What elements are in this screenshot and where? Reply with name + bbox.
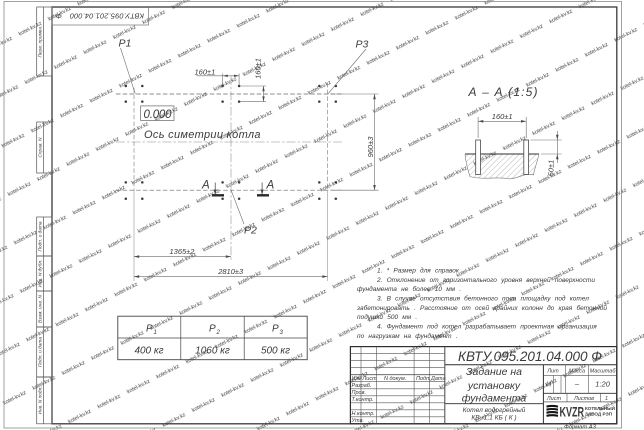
- svg-text:А – А (1:5): А – А (1:5): [468, 85, 538, 99]
- svg-text:Справ. N: Справ. N: [38, 137, 44, 158]
- svg-text:Котел водогрейный: Котел водогрейный: [463, 406, 526, 414]
- svg-text:Т.контр.: Т.контр.: [352, 397, 374, 403]
- svg-text:960±3: 960±3: [366, 136, 375, 158]
- svg-text:Утв.: Утв.: [351, 418, 365, 424]
- svg-text:2810±3: 2810±3: [217, 267, 244, 276]
- svg-text:Перв. примен.: Перв. примен.: [38, 26, 44, 58]
- svg-text:160±1: 160±1: [492, 112, 513, 121]
- svg-text:Инв. N дубл.: Инв. N дубл.: [38, 260, 44, 288]
- svg-text:Формат А3: Формат А3: [564, 424, 596, 430]
- svg-text:установку: установку: [467, 380, 521, 392]
- svg-text:КОТЕЛЬНЫЙ: КОТЕЛЬНЫЙ: [585, 404, 615, 411]
- svg-text:Подп. и дата: Подп. и дата: [38, 221, 44, 251]
- svg-text:4. Фундамент под котел раз: 4. Фундамент под котел разрабатывает про…: [377, 323, 597, 331]
- svg-text:1:20: 1:20: [595, 380, 610, 389]
- svg-text:подушки 500 мм .: подушки 500 мм .: [357, 313, 417, 321]
- svg-text:400 кг: 400 кг: [134, 345, 163, 356]
- svg-text:–: –: [574, 379, 580, 388]
- svg-text:50±1: 50±1: [546, 160, 555, 177]
- svg-text:Разраб.: Разраб.: [352, 383, 372, 389]
- svg-text:N докум.: N докум.: [384, 376, 406, 382]
- svg-text:1. * Размер для справок .: 1. * Размер для справок .: [377, 266, 465, 274]
- svg-text:P1: P1: [119, 37, 132, 49]
- svg-text:Р: Р: [209, 324, 216, 335]
- svg-text:Изм.: Изм.: [352, 376, 364, 382]
- svg-text:2: 2: [216, 330, 221, 336]
- svg-text:3. В случае отсутствия бет: 3. В случае отсутствия бетонного пола пл…: [377, 295, 589, 303]
- svg-text:Задание на: Задание на: [466, 366, 522, 378]
- svg-text:Лист: Лист: [362, 376, 378, 382]
- svg-text:P2: P2: [244, 225, 257, 237]
- svg-text:1: 1: [605, 396, 608, 402]
- svg-text:1060 кг: 1060 кг: [195, 345, 230, 356]
- svg-text:1365±2: 1365±2: [170, 247, 196, 256]
- svg-text:160±1: 160±1: [253, 58, 262, 79]
- svg-text:ЗАВОД РЭП: ЗАВОД РЭП: [585, 411, 612, 416]
- svg-text:КВТУ.095.201.04.000 Ф: КВТУ.095.201.04.000 Ф: [56, 11, 144, 20]
- svg-text:Ось симетрии котла: Ось симетрии котла: [144, 129, 261, 141]
- svg-text:А: А: [266, 180, 275, 192]
- svg-text:Масштаб: Масштаб: [590, 369, 617, 375]
- svg-text:Подп. и дата: Подп. и дата: [38, 337, 44, 367]
- svg-text:Пров.: Пров.: [352, 390, 367, 396]
- svg-text:0.000: 0.000: [144, 109, 173, 121]
- svg-text:Подп.: Подп.: [416, 376, 431, 382]
- svg-text:И: И: [546, 380, 552, 389]
- svg-text:500 кг: 500 кг: [261, 345, 290, 356]
- svg-text:КВ -1,1 КБ ( К ): КВ -1,1 КБ ( К ): [471, 415, 516, 422]
- svg-text:160±1: 160±1: [194, 68, 215, 77]
- svg-text:КВТУ.095.201.04.000 Ф: КВТУ.095.201.04.000 Ф: [458, 349, 602, 364]
- svg-text:Н.контр.: Н.контр.: [352, 411, 375, 417]
- svg-text:Масса: Масса: [569, 369, 585, 375]
- svg-text:1: 1: [154, 330, 157, 336]
- svg-text:2. Отклонение от горизонтал: 2. Отклонение от горизонтального уровня …: [376, 276, 595, 284]
- svg-text:фундамента не более 10 м: фундамента не более 10 мм .: [357, 285, 461, 293]
- svg-text:Лист: Лист: [546, 396, 562, 402]
- svg-text:P3: P3: [356, 39, 369, 51]
- svg-text:фундамента: фундамента: [462, 392, 527, 404]
- svg-text:Р: Р: [272, 324, 279, 335]
- svg-text:А: А: [201, 180, 210, 192]
- svg-text:KVZR: KVZR: [560, 404, 585, 420]
- svg-text:Дата: Дата: [430, 376, 446, 382]
- svg-text:по нагрузкам на фундамент .: по нагрузкам на фундамент .: [357, 332, 458, 340]
- svg-text:Взам. инв. N: Взам. инв. N: [38, 295, 44, 323]
- svg-text:забетонировать . Расстояние: забетонировать . Расстояние от осей край…: [356, 304, 607, 312]
- svg-text:Лит: Лит: [546, 369, 559, 375]
- svg-text:Инв. N подл.: Инв. N подл.: [38, 386, 44, 414]
- svg-text:Р: Р: [146, 324, 153, 335]
- svg-text:Листов: Листов: [573, 396, 594, 402]
